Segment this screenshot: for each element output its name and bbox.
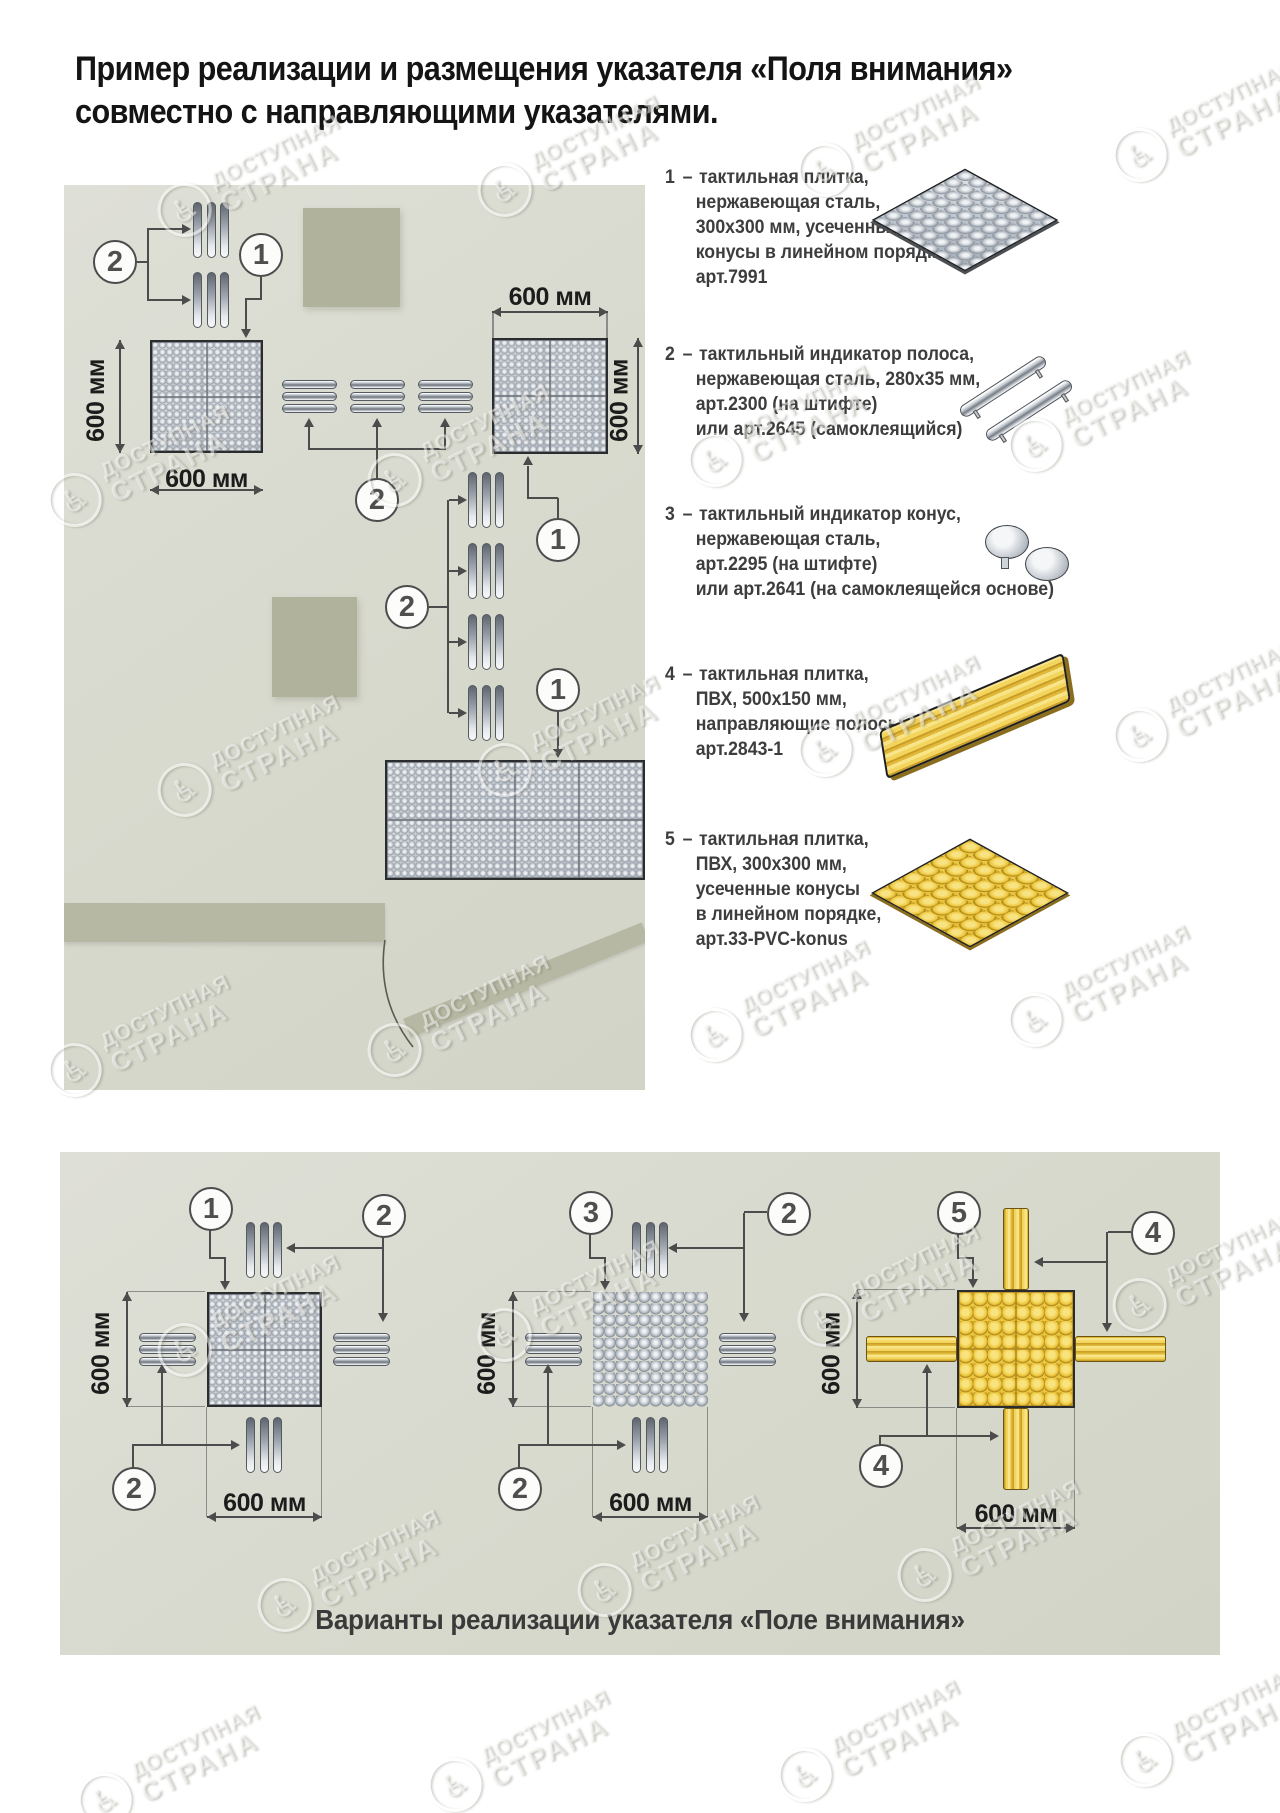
leader-line xyxy=(308,427,310,449)
marker-circle-2: 2 xyxy=(767,1192,811,1236)
tactile-strip-bar xyxy=(646,1417,655,1473)
tactile-strip-bar xyxy=(220,202,229,258)
leader-line xyxy=(527,466,529,498)
tile-module xyxy=(515,820,579,878)
tactile-strip-group xyxy=(468,685,504,741)
legend-text: нержавеющая сталь, 280х35 мм, xyxy=(696,367,980,392)
tactile-strip-bar xyxy=(418,392,473,401)
arrowhead xyxy=(990,1431,999,1441)
variants-panel: 1 2 600 мм 600 мм 2 3 xyxy=(60,1152,1220,1655)
watermark: ♿ДОСТУПНАЯСТРАНА xyxy=(1109,1658,1280,1796)
marker-circle-2: 2 xyxy=(362,1194,406,1238)
tactile-strip-bar xyxy=(350,392,405,401)
leader-line xyxy=(672,1247,743,1249)
watermark-text: ДОСТУПНАЯСТРАНА xyxy=(826,1676,974,1781)
infographic-page: Пример реализации и размещения указателя… xyxy=(0,0,1280,1813)
tactile-strip-bar xyxy=(525,1333,582,1342)
leader-line xyxy=(972,1257,974,1281)
legend-text: тактильный индикатор полоса, xyxy=(699,342,974,367)
extension-line xyxy=(857,1289,955,1290)
tactile-strip-bar xyxy=(468,472,477,528)
main-plan-panel: 2 1 600 мм 600 мм xyxy=(64,185,645,1090)
arrowhead xyxy=(633,338,643,347)
arrowhead xyxy=(372,418,382,427)
tactile-strip-bar xyxy=(525,1345,582,1354)
arrowhead xyxy=(543,1364,553,1373)
tactile-strip-bar xyxy=(495,614,504,670)
dimension-label: 600 мм xyxy=(492,283,608,312)
marker-circle-2: 2 xyxy=(112,1467,156,1511)
dimension-label: 600 мм xyxy=(207,1489,322,1518)
arrowhead xyxy=(286,1243,295,1253)
tactile-strip-bar xyxy=(333,1357,390,1366)
tactile-strip-bar xyxy=(468,543,477,599)
legend-line: 5 – тактильная плитка, xyxy=(665,827,881,852)
tactile-strip-group xyxy=(719,1333,776,1366)
tactile-strip-bar xyxy=(482,472,491,528)
tactile-strip-bar xyxy=(482,685,491,741)
dimension-label: 600 мм xyxy=(150,465,263,494)
steel-cone-icon xyxy=(985,515,1095,595)
door-leaf xyxy=(403,922,645,1037)
title-line-2: совместно с направляющими указателями. xyxy=(75,91,1012,134)
tile-module xyxy=(550,340,606,396)
marker-circle-2: 2 xyxy=(498,1467,542,1511)
extension-line xyxy=(606,313,608,338)
tile-module xyxy=(265,1294,321,1350)
tactile-strip-bar xyxy=(719,1357,776,1366)
marker-circle-1: 1 xyxy=(239,233,283,277)
tactile-strip-bar xyxy=(139,1333,196,1342)
marker-circle-1: 1 xyxy=(189,1187,233,1231)
legend-separator: – xyxy=(683,827,693,852)
steel-tactile-tile xyxy=(207,1292,322,1407)
tactile-strip-group xyxy=(468,543,504,599)
arrowhead xyxy=(1102,1323,1112,1332)
arrowhead xyxy=(241,329,251,338)
tactile-strip-group xyxy=(632,1222,668,1278)
legend-separator: – xyxy=(683,342,693,367)
tile-module xyxy=(515,762,579,820)
variants-caption: Варианты реализации указателя «Поле вним… xyxy=(101,1604,1180,1636)
arrowhead xyxy=(633,445,643,454)
tactile-strip-bar xyxy=(350,404,405,413)
arrowhead xyxy=(182,295,191,305)
tactile-strip-bar xyxy=(418,404,473,413)
tactile-strip-bar xyxy=(193,272,202,328)
tactile-strip-bar xyxy=(719,1333,776,1342)
leader-line xyxy=(518,1445,520,1469)
leader-line xyxy=(547,1372,549,1445)
tactile-strip-bar xyxy=(273,1222,282,1278)
page-title: Пример реализации и размещения указателя… xyxy=(75,48,1012,134)
tile-module xyxy=(451,762,515,820)
tile-module xyxy=(387,762,451,820)
arrowhead xyxy=(458,637,467,647)
extension-line xyxy=(492,313,494,338)
tactile-strip-bar xyxy=(495,543,504,599)
wheelchair-icon: ♿ xyxy=(419,1749,491,1813)
legend-number: 4 xyxy=(665,662,678,687)
arrowhead xyxy=(458,566,467,576)
pvc-guide-strip xyxy=(866,1336,957,1362)
legend-line: 2 – тактильный индикатор полоса, xyxy=(665,342,980,367)
leader-line xyxy=(444,427,446,449)
legend-separator: – xyxy=(683,165,693,190)
tactile-strip-group xyxy=(632,1417,668,1473)
tactile-strip-bar xyxy=(139,1345,196,1354)
tactile-strip-bar xyxy=(719,1345,776,1354)
leader-line xyxy=(147,228,149,301)
tile-module xyxy=(579,762,643,820)
watermark: ♿ДОСТУПНАЯСТРАНА xyxy=(1104,53,1280,191)
dimension-line xyxy=(512,1292,514,1407)
wall xyxy=(64,903,385,942)
tactile-strip-bar xyxy=(482,543,491,599)
leader-line xyxy=(245,298,262,300)
arrowhead xyxy=(852,1290,862,1299)
marker-circle-1: 1 xyxy=(536,518,580,562)
arrowhead xyxy=(220,1281,230,1290)
leader-line xyxy=(743,1213,745,1314)
legend-text: ПВХ, 300х300 мм, xyxy=(696,852,882,877)
tile-module xyxy=(550,396,606,452)
tactile-strip-bar xyxy=(659,1222,668,1278)
dimension-label: 600 мм xyxy=(87,1296,116,1411)
tactile-strip-group xyxy=(350,380,405,413)
marker-circle-5: 5 xyxy=(937,1191,981,1235)
marker-circle-1: 1 xyxy=(536,668,580,712)
tactile-strip-bar xyxy=(139,1357,196,1366)
tactile-strip-group xyxy=(246,1417,282,1473)
tactile-strip-bar xyxy=(333,1345,390,1354)
leader-line xyxy=(879,1435,991,1437)
tile-module xyxy=(494,396,550,452)
tactile-strip-bar xyxy=(495,472,504,528)
leader-line xyxy=(149,299,182,301)
steel-tactile-tile xyxy=(492,338,608,454)
pvc-guide-tile-icon xyxy=(865,650,1085,780)
arrowhead xyxy=(115,340,125,349)
extension-line xyxy=(513,1406,591,1407)
pvc-cone-tile-icon xyxy=(855,820,1085,970)
arrowhead xyxy=(922,1364,932,1373)
arrowhead xyxy=(458,708,467,718)
leader-line xyxy=(132,1445,134,1469)
wheelchair-icon: ♿ xyxy=(679,999,751,1071)
leader-line xyxy=(957,1233,959,1259)
wheelchair-icon: ♿ xyxy=(69,1764,141,1813)
legend-text: тактильная плитка, xyxy=(699,827,869,852)
legend-item-2: 2 – тактильный индикатор полоса, нержаве… xyxy=(665,342,980,442)
leader-line xyxy=(429,606,447,608)
watermark: ♿ДОСТУПНАЯСТРАНА xyxy=(69,1698,276,1813)
tactile-strip-bar xyxy=(482,614,491,670)
arrowhead xyxy=(523,456,533,465)
leader-line xyxy=(260,277,262,300)
arrowhead xyxy=(739,1313,749,1322)
dimension-label: 600 мм xyxy=(818,1295,847,1413)
tactile-strip-bar xyxy=(525,1357,582,1366)
tactile-strip-bar xyxy=(468,614,477,670)
tactile-strip-group xyxy=(193,202,229,258)
watermark-text: ДОСТУПНАЯСТРАНА xyxy=(1161,636,1280,741)
pvc-guide-strip xyxy=(1075,1336,1166,1362)
leader-line xyxy=(447,500,449,713)
tactile-strip-bar xyxy=(282,404,337,413)
legend-text: или арт.2645 (самоклеящийся) xyxy=(696,417,980,442)
arrowhead xyxy=(668,1243,677,1253)
wheelchair-icon: ♿ xyxy=(1104,699,1176,771)
tactile-strip-bar xyxy=(207,272,216,328)
legend-text: арт.2300 (на штифте) xyxy=(696,392,980,417)
leader-line xyxy=(527,497,558,499)
leader-line xyxy=(557,712,559,750)
leader-line xyxy=(290,1247,382,1249)
legend-text: арт.33-PVC-konus xyxy=(696,927,882,952)
tactile-strip-bar xyxy=(260,1417,269,1473)
tactile-strip-group xyxy=(246,1222,282,1278)
marker-circle-2: 2 xyxy=(355,478,399,522)
marker-circle-3: 3 xyxy=(569,1191,613,1235)
tactile-strip-bar xyxy=(273,1417,282,1473)
wheelchair-icon: ♿ xyxy=(769,1739,841,1811)
arrowhead xyxy=(508,1292,518,1301)
wheelchair-icon: ♿ xyxy=(1104,119,1176,191)
tactile-strip-bar xyxy=(220,272,229,328)
dimension-label: 600 мм xyxy=(957,1500,1075,1529)
legend-text: тактильная плитка, xyxy=(699,165,869,190)
tactile-strip-bar xyxy=(646,1222,655,1278)
watermark-text: ДОСТУПНАЯСТРАНА xyxy=(1161,56,1280,161)
door-swing-arc xyxy=(364,938,434,1058)
leader-line xyxy=(589,1233,591,1259)
tile-module xyxy=(959,1349,1016,1406)
tactile-strip-group xyxy=(525,1333,582,1366)
leader-line xyxy=(1106,1232,1108,1324)
dimension-line xyxy=(119,340,121,453)
leader-line xyxy=(149,228,182,230)
leader-line xyxy=(376,427,378,449)
leader-line xyxy=(161,1372,163,1445)
leader-line xyxy=(1108,1231,1131,1233)
tactile-strip-bar xyxy=(632,1417,641,1473)
legend-item-5: 5 – тактильная плитка, ПВХ, 300х300 мм, … xyxy=(665,827,881,952)
tactile-strip-group xyxy=(282,380,337,413)
leader-line xyxy=(518,1444,622,1446)
dimension-line xyxy=(637,338,639,454)
arrowhead xyxy=(553,749,563,758)
steel-strip-icon xyxy=(945,350,1095,460)
extension-line xyxy=(513,1291,591,1292)
marker-circle-2: 2 xyxy=(93,240,137,284)
tactile-strip-group xyxy=(468,614,504,670)
tactile-strip-bar xyxy=(418,380,473,389)
tile-module xyxy=(1016,1292,1073,1349)
arrowhead xyxy=(182,224,191,234)
tactile-strip-bar xyxy=(246,1222,255,1278)
arrowhead xyxy=(378,1313,388,1322)
tactile-strip-bar xyxy=(468,685,477,741)
tactile-strip-bar xyxy=(282,392,337,401)
dimension-label: 600 мм xyxy=(473,1296,502,1411)
tile-module xyxy=(207,397,262,452)
pvc-guide-strip xyxy=(1003,1408,1029,1490)
pvc-tactile-tile xyxy=(957,1290,1075,1408)
arrowhead xyxy=(968,1279,978,1288)
tile-module xyxy=(1016,1349,1073,1406)
marker-circle-4: 4 xyxy=(859,1444,903,1488)
legend-text: тактильная плитка, xyxy=(699,662,869,687)
floor-mat xyxy=(272,597,357,697)
watermark-text: ДОСТУПНАЯСТРАНА xyxy=(1166,1661,1280,1766)
leader-line xyxy=(376,450,378,478)
leader-line xyxy=(604,1257,606,1282)
dimension-label: 600 мм xyxy=(593,1489,708,1518)
arrowhead xyxy=(122,1292,132,1301)
dimension-line xyxy=(856,1290,858,1408)
tactile-strip-bar xyxy=(282,380,337,389)
tile-module xyxy=(265,1350,321,1406)
watermark: ♿ДОСТУПНАЯСТРАНА xyxy=(1104,633,1280,771)
tactile-strip-bar xyxy=(207,202,216,258)
tile-module xyxy=(209,1294,265,1350)
tactile-strip-bar xyxy=(246,1417,255,1473)
cone-field xyxy=(593,1292,708,1407)
leader-line xyxy=(1038,1261,1106,1263)
tile-module xyxy=(959,1292,1016,1349)
steel-tactile-tile xyxy=(150,340,263,453)
tactile-strip-group xyxy=(333,1333,390,1366)
tile-module xyxy=(152,342,207,397)
watermark-text: ДОСТУПНАЯСТРАНА xyxy=(126,1701,274,1806)
extension-line xyxy=(127,1406,205,1407)
arrowhead xyxy=(440,418,450,427)
arrowhead xyxy=(157,1364,167,1373)
marker-circle-2: 2 xyxy=(385,585,429,629)
legend-number: 5 xyxy=(665,827,678,852)
leader-line xyxy=(926,1370,928,1437)
leader-line xyxy=(224,1257,226,1282)
pvc-guide-strip xyxy=(1003,1208,1029,1290)
tactile-strip-group xyxy=(139,1333,196,1366)
extension-line xyxy=(127,1291,205,1292)
leader-line xyxy=(132,1444,236,1446)
wheelchair-icon: ♿ xyxy=(999,984,1071,1056)
tactile-strip-bar xyxy=(333,1333,390,1342)
tactile-strip-group xyxy=(468,472,504,528)
tactile-strip-group xyxy=(418,380,473,413)
leader-line xyxy=(382,1236,384,1314)
tactile-strip-bar xyxy=(260,1222,269,1278)
legend-text: тактильный индикатор конус, xyxy=(699,502,961,527)
legend-number: 3 xyxy=(665,502,678,527)
watermark: ♿ДОСТУПНАЯСТРАНА xyxy=(769,1673,976,1811)
tile-module xyxy=(579,820,643,878)
tactile-strip-bar xyxy=(632,1222,641,1278)
leader-line xyxy=(744,1211,767,1213)
leader-line xyxy=(557,498,559,518)
tactile-strip-bar xyxy=(350,380,405,389)
dimension-label: 600 мм xyxy=(606,343,635,459)
wheelchair-icon: ♿ xyxy=(1109,1724,1181,1796)
arrowhead xyxy=(1034,1257,1043,1267)
arrowhead xyxy=(617,1440,626,1450)
marker-circle-4: 4 xyxy=(1131,1211,1175,1255)
legend-number: 1 xyxy=(665,165,678,190)
arrowhead xyxy=(600,1281,610,1290)
tile-module xyxy=(387,820,451,878)
arrowhead xyxy=(458,495,467,505)
legend-separator: – xyxy=(683,662,693,687)
tile-module xyxy=(209,1350,265,1406)
dimension-line xyxy=(126,1292,128,1407)
tactile-strip-bar xyxy=(659,1417,668,1473)
tile-module xyxy=(207,342,262,397)
arrowhead xyxy=(231,1440,240,1450)
steel-tactile-tile-wide xyxy=(385,760,645,880)
leader-line xyxy=(209,1229,211,1259)
extension-line xyxy=(857,1407,955,1408)
tile-module xyxy=(451,820,515,878)
legend-text: в линейном порядке, xyxy=(696,902,882,927)
tactile-strip-bar xyxy=(495,685,504,741)
tile-module xyxy=(494,340,550,396)
tile-module xyxy=(152,397,207,452)
watermark: ♿ДОСТУПНАЯСТРАНА xyxy=(419,1683,626,1813)
dimension-label: 600 мм xyxy=(82,344,111,457)
arrowhead xyxy=(115,444,125,453)
steel-tile-icon xyxy=(860,160,1070,280)
floor-mat xyxy=(303,208,400,307)
watermark-text: ДОСТУПНАЯСТРАНА xyxy=(476,1686,624,1791)
legend-text: усеченные конусы xyxy=(696,877,882,902)
legend-separator: – xyxy=(683,502,693,527)
tactile-strip-bar xyxy=(193,202,202,258)
tactile-strip-group xyxy=(193,272,229,328)
arrowhead xyxy=(304,418,314,427)
legend-number: 2 xyxy=(665,342,678,367)
title-line-1: Пример реализации и размещения указателя… xyxy=(75,48,1012,91)
